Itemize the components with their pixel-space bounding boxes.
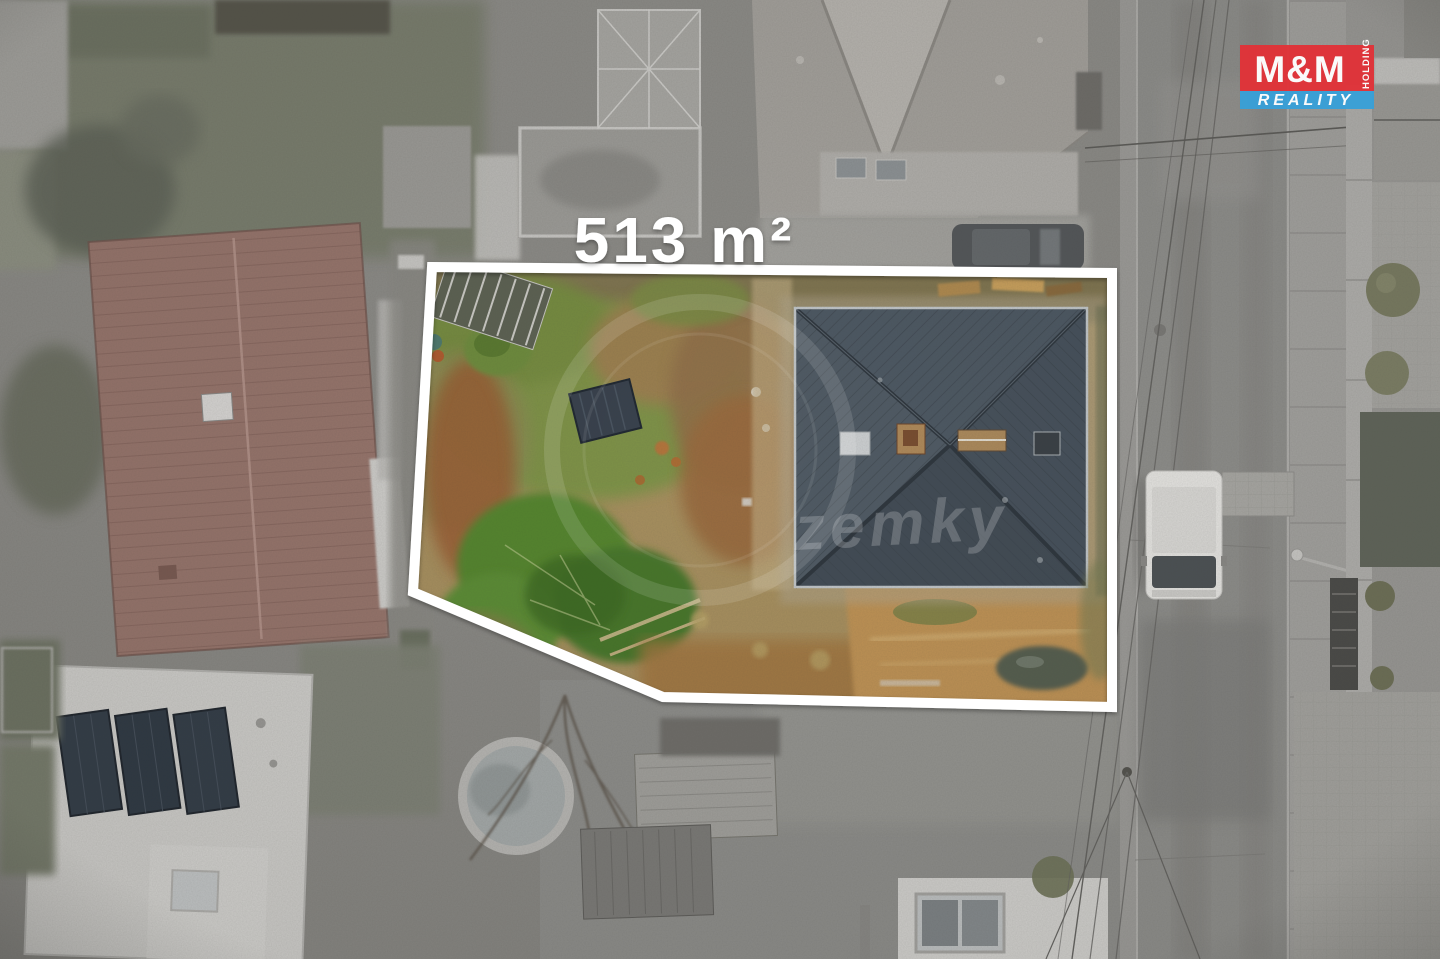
grain-overlay <box>0 0 1440 959</box>
logo-holding-text: HOLDING <box>1361 38 1372 89</box>
agency-logo: M&M HOLDING REALITY <box>1240 38 1374 109</box>
plot-area-label: 513 m² <box>574 204 795 276</box>
watermark-text: zemky <box>791 484 1010 564</box>
logo-mm-text: M&M <box>1254 49 1345 90</box>
aerial-screenshot: zemky 513 m² M&M HOLDING REALITY <box>0 0 1440 959</box>
aerial-photo-canvas: zemky 513 m² M&M HOLDING REALITY <box>0 0 1440 959</box>
logo-reality-text: REALITY <box>1258 92 1354 109</box>
